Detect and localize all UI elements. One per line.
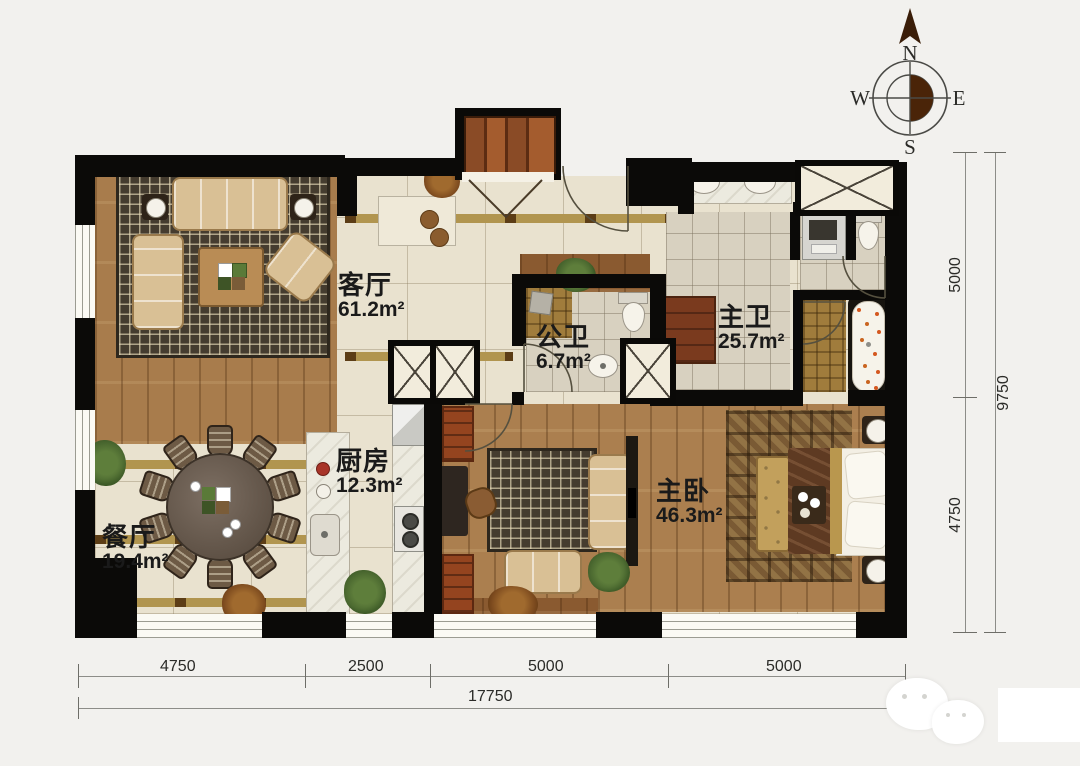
wall-segment <box>655 390 803 406</box>
dimension-tick <box>78 697 79 719</box>
window <box>137 614 262 638</box>
room-name: 公卫 <box>536 324 591 351</box>
floor-plan-page: { "compass": { "n": "N", "e": "E", "s": … <box>0 0 1080 766</box>
table-lamp <box>146 198 166 218</box>
bathtub <box>852 301 885 392</box>
dimension-tick <box>305 664 306 688</box>
wall-segment <box>424 390 442 616</box>
tray-item <box>218 277 231 290</box>
dish <box>810 498 820 508</box>
closet-box <box>795 160 899 216</box>
compass-e-label: E <box>953 86 966 110</box>
north-arrow-icon <box>899 8 921 44</box>
dish <box>800 508 810 518</box>
drain <box>321 531 328 538</box>
wall-segment <box>678 162 694 214</box>
bubble-eye <box>962 713 966 717</box>
dish <box>222 527 233 538</box>
tv-partition <box>626 436 638 566</box>
room-label-dining: 餐厅 19.4m² <box>102 524 169 573</box>
room-area: 25.7m² <box>718 331 785 353</box>
wall-stub <box>790 212 800 260</box>
wall-segment <box>75 155 345 177</box>
window <box>346 614 392 638</box>
wall-stub <box>846 212 856 260</box>
window <box>434 614 596 638</box>
shower-tray <box>529 291 554 316</box>
compass-n-label: N <box>902 41 917 65</box>
centerpiece <box>202 487 215 500</box>
bubble-eye <box>902 694 907 699</box>
plant <box>588 552 630 592</box>
dimension-tick <box>668 664 669 688</box>
dim-right-total: 9750 <box>995 375 1013 411</box>
room-label-master-bath: 主卫 25.7m² <box>718 304 785 353</box>
room-label-kitchen: 厨房 12.3m² <box>336 448 403 497</box>
room-area: 12.3m² <box>336 475 403 497</box>
tray-item <box>232 263 247 278</box>
pillow <box>844 500 890 549</box>
compass-s-label: S <box>904 135 916 158</box>
shaft-box <box>430 340 480 404</box>
tray-item <box>232 277 245 290</box>
washer-panel <box>811 244 837 254</box>
room-name: 餐厅 <box>102 524 169 551</box>
bathtub-surround <box>848 296 888 396</box>
centerpiece <box>216 487 231 502</box>
wall-bottom-segment <box>392 612 434 638</box>
watermark-wechat-icon <box>880 672 1000 750</box>
watermark-blank-patch <box>998 688 1080 742</box>
dim-bottom-4: 5000 <box>766 658 802 676</box>
dimension-tick <box>78 664 79 688</box>
tray-item <box>218 263 233 278</box>
dim-bottom-3: 5000 <box>528 658 564 676</box>
shower-tile-master <box>803 300 846 392</box>
wall-segment <box>512 274 664 288</box>
bed-tray <box>792 486 826 524</box>
burner <box>402 531 419 548</box>
pedestal-sink <box>588 354 618 378</box>
room-area: 46.3m² <box>656 505 723 527</box>
wall-segment <box>848 390 887 406</box>
drain <box>600 363 606 369</box>
entry-double-door <box>464 116 556 174</box>
bedroom-rug <box>487 448 597 552</box>
wall-right <box>885 162 907 638</box>
wall-bottom-segment <box>262 612 346 638</box>
drain <box>866 342 871 347</box>
shaft-box <box>620 338 676 404</box>
entry-threshold <box>462 172 554 182</box>
dimension-tick <box>984 152 1006 153</box>
centerpiece <box>216 501 229 514</box>
bubble-eye <box>946 713 950 717</box>
dim-bottom-2: 2500 <box>348 658 384 676</box>
dimension-line-right <box>965 152 966 632</box>
compass-rose: N E S W <box>845 6 975 158</box>
bubble-eye <box>922 694 927 699</box>
dish <box>190 481 201 492</box>
fridge <box>392 404 426 446</box>
washer-door <box>809 220 837 240</box>
wall-left-segment <box>75 490 95 562</box>
living-sofa-left <box>132 234 184 330</box>
wechat-bubble-small <box>932 700 984 744</box>
room-name: 主卫 <box>718 304 785 331</box>
dim-bottom-total: 17750 <box>468 688 513 706</box>
coffee-table <box>198 247 264 307</box>
wall-segment <box>793 290 803 396</box>
window <box>75 410 95 490</box>
room-label-public-bath: 公卫 6.7m² <box>536 324 591 373</box>
bookshelf <box>442 406 474 462</box>
wall-bottom-segment <box>856 612 887 638</box>
dimension-tick <box>430 664 431 688</box>
washing-machine <box>802 214 846 260</box>
dim-right-1: 5000 <box>947 257 965 293</box>
dining-table <box>166 453 274 561</box>
burner <box>402 513 419 530</box>
stove <box>394 506 424 552</box>
dimension-tick <box>984 632 1006 633</box>
flower-petals <box>857 308 861 312</box>
plant <box>344 570 386 614</box>
dim-right-2: 4750 <box>947 497 965 533</box>
dining-chair <box>207 557 233 589</box>
dish <box>798 492 808 502</box>
room-area: 19.4m² <box>102 551 169 573</box>
desk <box>438 466 468 536</box>
kitchen-sink <box>310 514 340 556</box>
window <box>75 225 95 318</box>
white-accessory <box>316 484 331 499</box>
tv-screen <box>628 488 636 518</box>
living-sofa-top <box>172 177 288 231</box>
table-lamp <box>294 198 314 218</box>
entry-stool <box>420 210 439 229</box>
window <box>662 614 856 638</box>
dim-bottom-1: 4750 <box>160 658 196 676</box>
dimension-line-bottom <box>78 676 905 677</box>
room-label-master-bedroom: 主卧 46.3m² <box>656 478 723 527</box>
wall-left-segment <box>75 318 95 410</box>
wall-segment <box>345 158 457 176</box>
compass-w-label: W <box>850 86 870 110</box>
room-area: 61.2m² <box>338 299 405 321</box>
dimension-line-bottom-total <box>78 708 905 709</box>
centerpiece <box>202 501 215 514</box>
dimension-tick <box>953 397 977 398</box>
red-accessory <box>316 462 330 476</box>
room-name: 主卧 <box>656 478 723 505</box>
room-name: 厨房 <box>336 448 403 475</box>
room-name: 客厅 <box>338 272 405 299</box>
wall-segment <box>512 392 524 405</box>
wall-pillar <box>337 158 357 216</box>
bed-bench <box>756 456 790 552</box>
wall-left-segment <box>75 155 95 225</box>
wall-segment <box>793 290 887 300</box>
wall-bottom-segment <box>596 612 662 638</box>
room-area: 6.7m² <box>536 351 591 373</box>
bed-runner <box>830 448 842 554</box>
room-label-living: 客厅 61.2m² <box>338 272 405 321</box>
dimension-tick <box>953 632 977 633</box>
entry-stool <box>430 228 449 247</box>
pillow <box>844 450 891 500</box>
bookshelf <box>442 554 474 614</box>
wall-segment <box>512 288 526 346</box>
